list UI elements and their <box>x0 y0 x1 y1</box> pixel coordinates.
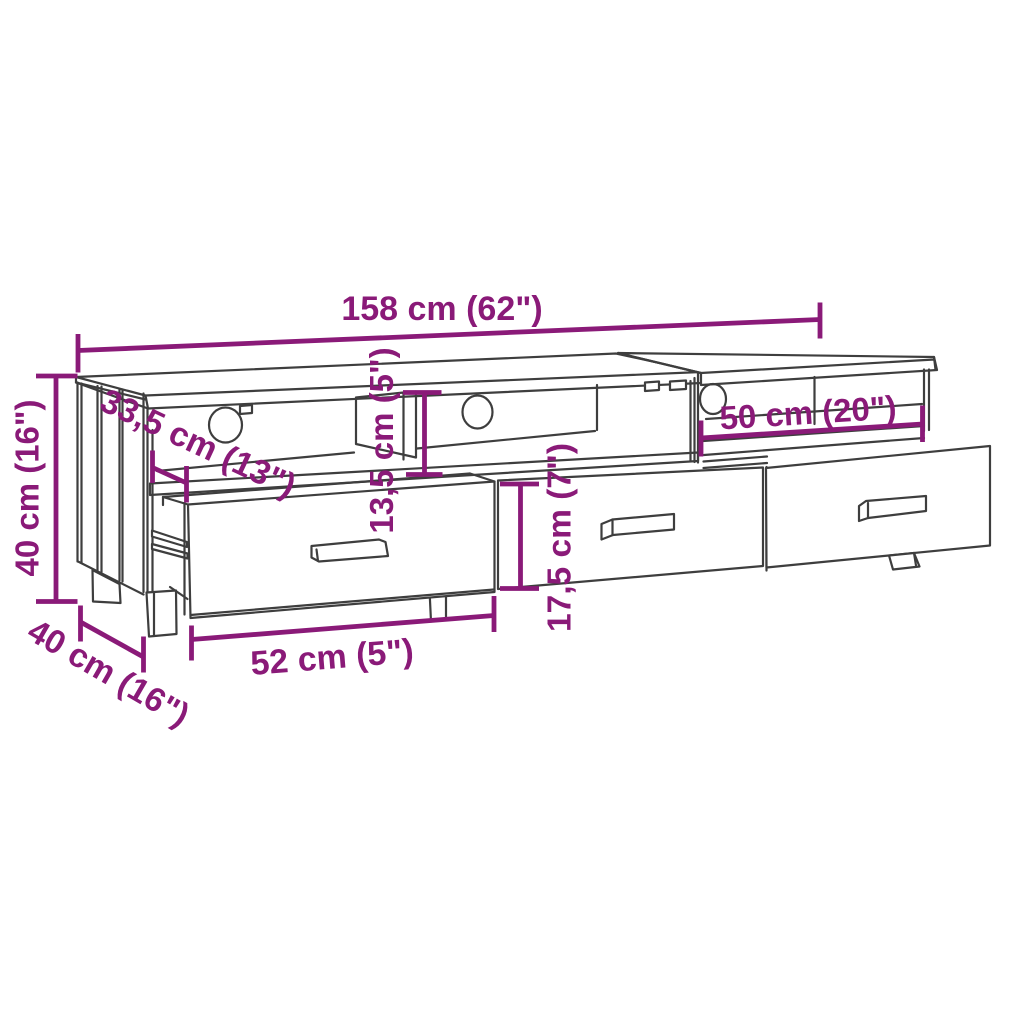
svg-text:13,5 cm (5"): 13,5 cm (5") <box>363 347 400 533</box>
svg-text:40 cm (16"): 40 cm (16") <box>9 399 46 576</box>
svg-text:17,5 cm (7"): 17,5 cm (7") <box>542 443 579 632</box>
svg-text:158 cm (62"): 158 cm (62") <box>341 290 542 328</box>
